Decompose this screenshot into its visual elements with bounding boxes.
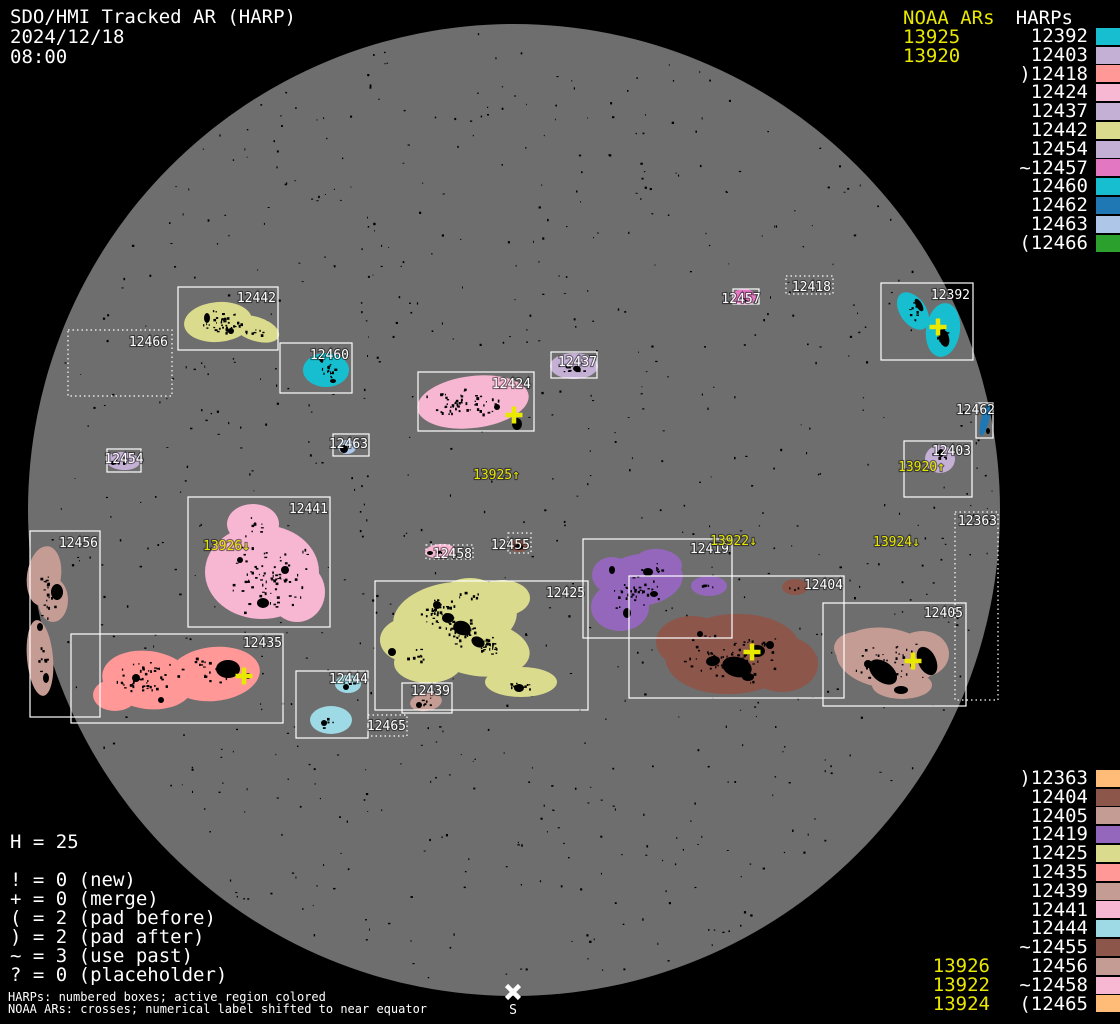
title-block: SDO/HMI Tracked AR (HARP) 2024/12/18 08:… bbox=[10, 7, 296, 67]
noaa-top-list: 1392513920 bbox=[903, 28, 995, 66]
harp-color-swatch bbox=[1096, 977, 1120, 994]
harp-top-label: 12454 bbox=[1031, 140, 1088, 159]
harp-box-label: 12456 bbox=[59, 536, 98, 551]
harp-color-swatch bbox=[1096, 28, 1120, 45]
harp-bottom-label: (12465 bbox=[1019, 995, 1088, 1014]
harp-top-row: 12403 bbox=[1019, 46, 1120, 65]
harp-box-label: 12425 bbox=[546, 586, 585, 601]
harp-color-swatch bbox=[1096, 958, 1120, 975]
harp-box-label: 12363 bbox=[958, 514, 997, 529]
harp-box-label: 12455 bbox=[491, 538, 530, 553]
time-label: 08:00 bbox=[10, 47, 296, 67]
harp-top-label: 12403 bbox=[1031, 46, 1088, 65]
harp-box-label: 12405 bbox=[924, 606, 963, 621]
harp-box-label: 12404 bbox=[804, 578, 843, 593]
legend-panel: H = 25 ! = 0 (new)+ = 0 (merge)( = 2 (pa… bbox=[10, 831, 227, 985]
noaa-bottom-list: 139261392213924 bbox=[933, 957, 990, 1013]
harp-top-label: 12463 bbox=[1031, 215, 1088, 234]
harp-bottom-label: 12439 bbox=[1031, 882, 1088, 901]
noaa-shifted-label: 13926↓ bbox=[203, 539, 250, 554]
harp-top-row: 12442 bbox=[1019, 121, 1120, 140]
harp-color-swatch bbox=[1096, 235, 1120, 252]
noaa-ars-title: NOAA ARs bbox=[903, 9, 995, 28]
harp-box-12465: 12465 bbox=[367, 715, 407, 736]
date-label: 2024/12/18 bbox=[10, 27, 296, 47]
noaa-shifted-label: 13924↓ bbox=[873, 535, 920, 550]
harp-top-row: 12392 bbox=[1019, 27, 1120, 46]
harp-box-label: 12418 bbox=[792, 280, 831, 295]
harp-bottom-row: 12456 bbox=[1019, 957, 1120, 976]
legend-line: ? = 0 (placeholder) bbox=[10, 966, 227, 985]
harp-color-swatch bbox=[1096, 122, 1120, 139]
harp-color-swatch bbox=[1096, 84, 1120, 101]
south-pole-label: S bbox=[509, 1003, 517, 1018]
harp-top-row: 12463 bbox=[1019, 215, 1120, 234]
noaa-top-item: 13925 bbox=[903, 28, 995, 47]
harp-box-label: 12462 bbox=[956, 403, 995, 418]
harp-bottom-row: 12435 bbox=[1019, 863, 1120, 882]
harp-top-label: 12392 bbox=[1031, 27, 1088, 46]
harp-box-label: 12460 bbox=[310, 348, 349, 363]
harp-color-swatch bbox=[1096, 807, 1120, 824]
harp-box-label: 12441 bbox=[289, 502, 328, 517]
harp-color-swatch bbox=[1096, 995, 1120, 1012]
harp-color-swatch bbox=[1096, 901, 1120, 918]
page-title: SDO/HMI Tracked AR (HARP) bbox=[10, 7, 296, 27]
noaa-bottom-item: 13924 bbox=[933, 995, 990, 1014]
harp-bottom-row: )12363 bbox=[1019, 769, 1120, 788]
noaa-ars-top-panel: NOAA ARs 1392513920 bbox=[903, 9, 995, 65]
harp-full-disk-plot: 1244212466124601242412437124181245712392… bbox=[0, 0, 1120, 1024]
harp-bottom-row: (12465 bbox=[1019, 995, 1120, 1014]
harp-top-label: (12466 bbox=[1019, 234, 1088, 253]
harp-top-row: 12454 bbox=[1019, 140, 1120, 159]
harp-bottom-row: ~12458 bbox=[1019, 976, 1120, 995]
harp-box-label: 12463 bbox=[329, 437, 368, 452]
harp-color-swatch bbox=[1096, 178, 1120, 195]
harp-color-swatch bbox=[1096, 197, 1120, 214]
harp-top-row: (12466 bbox=[1019, 234, 1120, 253]
noaa-top-item: 13920 bbox=[903, 47, 995, 66]
noaa-bottom-item: 13926 bbox=[933, 957, 990, 976]
harp-box-label: 12442 bbox=[237, 291, 276, 306]
harp-bottom-label: 12435 bbox=[1031, 863, 1088, 882]
harp-box-label: 12444 bbox=[329, 672, 368, 687]
harp-top-label: 12442 bbox=[1031, 121, 1088, 140]
harps-bottom-list: )123631240412405124191242512435124391244… bbox=[1019, 769, 1120, 1013]
harp-bottom-label: 12456 bbox=[1031, 957, 1088, 976]
harp-color-swatch bbox=[1096, 864, 1120, 881]
harp-box-label: 12457 bbox=[721, 292, 760, 307]
footer-line-2: NOAA ARs: crosses; numerical label shift… bbox=[8, 1004, 427, 1016]
harp-box-label: 12466 bbox=[129, 335, 168, 350]
harp-color-swatch bbox=[1096, 826, 1120, 843]
harp-box-label: 12454 bbox=[104, 452, 143, 467]
footer-notes: HARPs: numbered boxes; active region col… bbox=[8, 992, 427, 1015]
harp-box-label: 12424 bbox=[492, 377, 531, 392]
harp-color-swatch bbox=[1096, 883, 1120, 900]
harp-box-12458: 12458 bbox=[426, 545, 473, 562]
harp-color-swatch bbox=[1096, 103, 1120, 120]
harp-color-swatch bbox=[1096, 141, 1120, 158]
harp-box-label: 12403 bbox=[932, 444, 971, 459]
noaa-shifted-label: 13920↑ bbox=[898, 460, 945, 475]
harp-bottom-row: 12404 bbox=[1019, 788, 1120, 807]
harp-color-swatch bbox=[1096, 216, 1120, 233]
harp-color-swatch bbox=[1096, 789, 1120, 806]
harp-bottom-label: 12404 bbox=[1031, 788, 1088, 807]
harp-box-12457: 12457 bbox=[721, 289, 760, 307]
harp-color-swatch bbox=[1096, 939, 1120, 956]
harp-color-swatch bbox=[1096, 845, 1120, 862]
noaa-shifted-label: 13922↓ bbox=[710, 534, 757, 549]
harp-box-label: 12439 bbox=[411, 684, 450, 699]
harp-box-label: 12465 bbox=[367, 719, 406, 734]
harp-box-label: 12458 bbox=[433, 547, 472, 562]
noaa-shifted-label: 13925↑ bbox=[473, 468, 520, 483]
harp-count-line: H = 25 bbox=[10, 831, 227, 853]
harp-box-label: 12392 bbox=[931, 288, 970, 303]
noaa-bottom-item: 13922 bbox=[933, 976, 990, 995]
legend-lines: ! = 0 (new)+ = 0 (merge)( = 2 (pad befor… bbox=[10, 871, 227, 985]
harp-color-swatch bbox=[1096, 47, 1120, 64]
harp-box-label: 12437 bbox=[558, 355, 597, 370]
harp-bottom-label: )12363 bbox=[1019, 769, 1088, 788]
harp-bottom-row: 12439 bbox=[1019, 882, 1120, 901]
harp-color-swatch bbox=[1096, 159, 1120, 176]
harp-color-swatch bbox=[1096, 770, 1120, 787]
harp-box-label: 12435 bbox=[243, 636, 282, 651]
harp-color-swatch bbox=[1096, 920, 1120, 937]
harp-color-swatch bbox=[1096, 65, 1120, 82]
harps-top-list: 1239212403)1241812424124371244212454~124… bbox=[1019, 27, 1120, 253]
harp-bottom-label: ~12458 bbox=[1019, 976, 1088, 995]
